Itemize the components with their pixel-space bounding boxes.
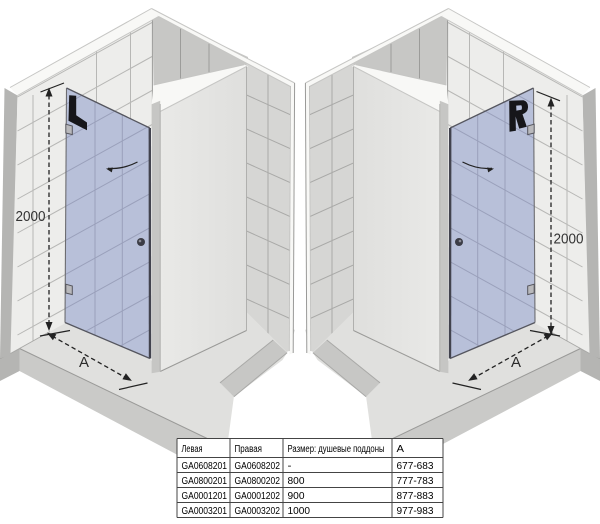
svg-text:А: А [397,444,405,455]
svg-text:GA0800201: GA0800201 [182,476,228,487]
svg-text:GA0001202: GA0001202 [235,491,281,502]
svg-text:GA0608201: GA0608201 [182,461,228,472]
svg-text:GA0003201: GA0003201 [182,506,228,517]
svg-text:900: 900 [288,491,305,502]
svg-text:2000: 2000 [554,232,584,248]
svg-text:1000: 1000 [288,506,311,517]
svg-text:GA0800202: GA0800202 [235,476,281,487]
svg-text:GA0003202: GA0003202 [235,506,281,517]
svg-text:2000: 2000 [16,209,46,225]
svg-text:А: А [79,354,89,371]
svg-text:-: - [288,461,292,472]
svg-text:800: 800 [288,476,305,487]
svg-text:А: А [511,354,521,371]
svg-text:777-783: 777-783 [397,476,434,487]
svg-text:Правая: Правая [235,444,263,455]
svg-text:977-983: 977-983 [397,506,434,517]
svg-text:Левая: Левая [182,444,203,455]
svg-text:GA0001201: GA0001201 [182,491,228,502]
svg-text:877-883: 877-883 [397,491,434,502]
svg-text:677-683: 677-683 [397,461,434,472]
svg-text:Размер: душевые поддоны: Размер: душевые поддоны [288,444,385,455]
svg-text:GA0608202: GA0608202 [235,461,281,472]
